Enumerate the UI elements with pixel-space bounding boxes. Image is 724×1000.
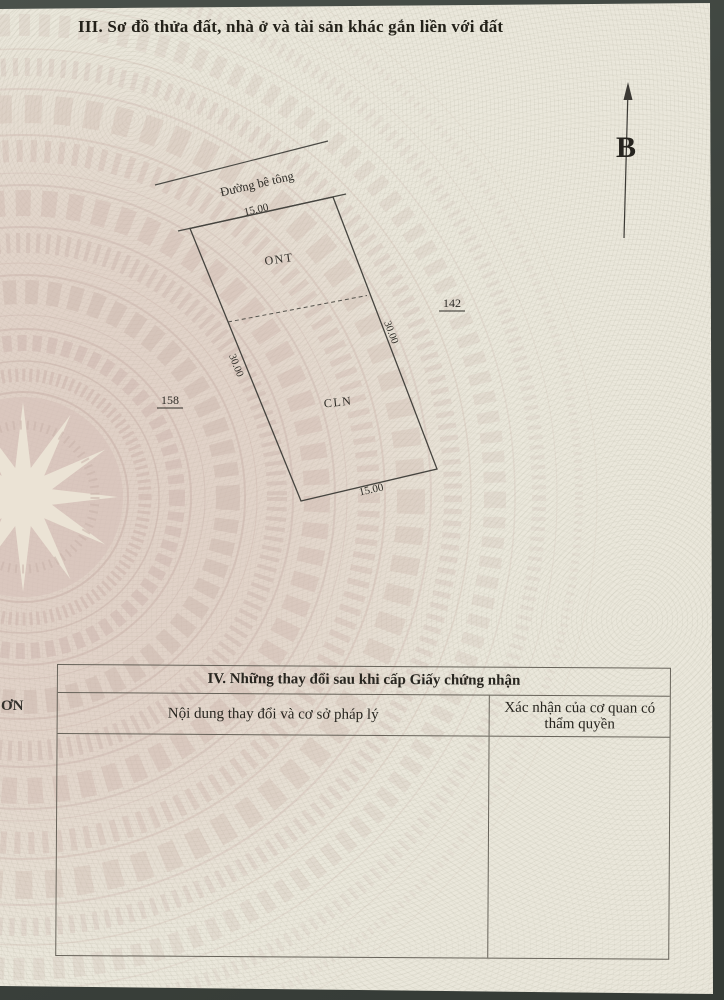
neighbor-parcel-right: 142 xyxy=(443,296,461,310)
photo-backdrop: III. Sơ đồ thửa đất, nhà ở và tài sản kh… xyxy=(0,0,724,1000)
dimension-bottom: 15.00 xyxy=(358,481,385,498)
road-edge-lower xyxy=(178,194,346,231)
dimension-top: 15.00 xyxy=(243,201,270,218)
section3-title: III. Sơ đồ thửa đất, nhà ở và tài sản kh… xyxy=(78,17,503,37)
section4-table: IV. Những thay đổi sau khi cấp Giấy chứn… xyxy=(55,664,671,960)
column-header-confirmation: Xác nhận của cơ quan có thẩm quyền xyxy=(490,696,670,737)
dimension-right: 30.00 xyxy=(381,320,400,346)
certificate-page: III. Sơ đồ thửa đất, nhà ở và tài sản kh… xyxy=(0,0,724,1000)
section4-header-row: Nội dung thay đổi và cơ sở pháp lý Xác n… xyxy=(58,693,670,738)
road-label: Đường bê tông xyxy=(219,169,296,200)
north-arrow-icon xyxy=(624,82,633,238)
neighbor-parcel-left: 158 xyxy=(161,393,179,407)
land-use-divider-dashed-line xyxy=(228,296,367,323)
left-edge-text: ƠN xyxy=(1,698,24,715)
section4-body xyxy=(56,734,669,959)
parcel-boundary xyxy=(190,197,437,501)
section4-body-confirmation-cell xyxy=(488,737,669,959)
land-use-code-upper: ONT xyxy=(264,250,295,268)
north-label: B xyxy=(616,131,636,164)
section4-body-content-cell xyxy=(56,734,489,958)
land-use-code-lower: CLN xyxy=(323,394,353,411)
road-edge-upper xyxy=(155,141,328,185)
section4-title: IV. Những thay đổi sau khi cấp Giấy chứn… xyxy=(58,665,670,697)
dimension-left: 30.00 xyxy=(226,353,245,379)
column-header-content: Nội dung thay đổi và cơ sở pháp lý xyxy=(58,693,490,736)
